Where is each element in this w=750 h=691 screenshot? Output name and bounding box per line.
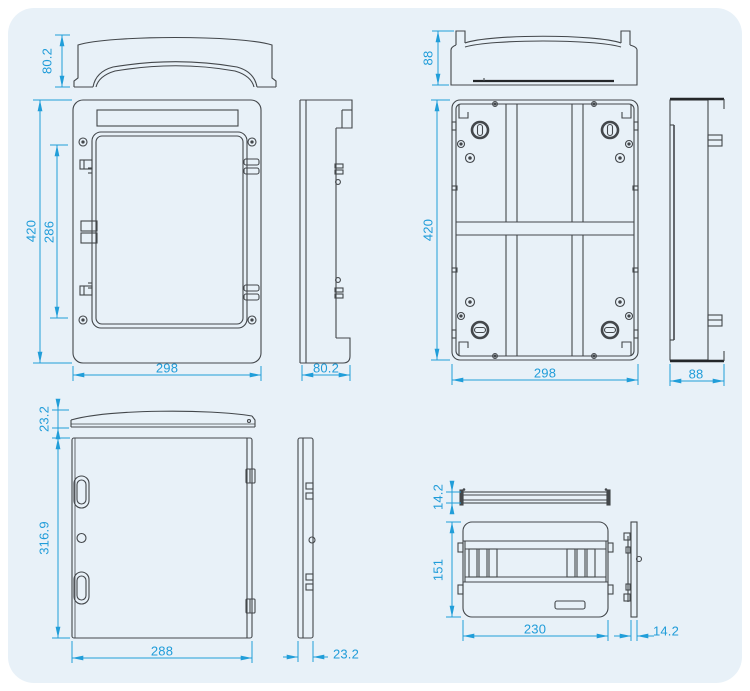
door-top-dimensions [52,399,69,439]
door-dimensions [52,438,252,663]
front-screws [79,138,256,324]
module-plate-side-view [614,522,654,641]
front-cover-profile-view [55,35,276,87]
dim-door-width: 288 [151,645,173,658]
dim-front-window-height: 286 [43,221,56,243]
base-back-view [431,100,638,385]
cover-height-dimension [55,35,70,87]
front-view [33,100,261,381]
dim-front-width: 298 [156,362,178,375]
dim-front-height: 420 [25,220,38,242]
drawing-canvas [0,0,750,691]
dim-door-side-depth: 23.2 [333,648,359,661]
module-dividers [469,549,595,577]
mounting-hooks [452,104,638,356]
front-left-clips [80,160,97,295]
dim-door-top-height: 23.2 [38,406,51,432]
rail-dimensions [446,481,461,514]
door-side-view [283,438,328,662]
base-top-view [432,31,637,85]
front-side-view [300,100,352,381]
dim-back-width: 298 [534,367,556,380]
front-dimensions [33,100,261,381]
dim-plate-width: 230 [524,623,546,636]
door-front-view [52,438,255,663]
dim-door-height: 316.9 [38,521,51,555]
dim-base-top-height: 88 [422,51,435,66]
technical-drawing-page: 80.2 420 286 298 80.2 88 420 298 88 23.2… [0,0,750,691]
door-handle-slots [74,476,89,604]
base-side-view [670,99,724,386]
rail-profile-view [446,481,610,514]
plate-side-dimensions [614,620,654,641]
front-hinge-tabs [244,159,259,300]
keyhole-mounts [472,122,618,338]
screw-bosses [458,102,633,359]
dim-front-side-depth: 80.2 [313,362,339,375]
door-top-profile-view [52,399,255,439]
door-side-dimensions [283,641,328,662]
dim-plate-height: 151 [432,559,445,581]
dim-back-height: 420 [422,219,435,241]
dim-rail-height: 14.2 [432,484,445,510]
dim-cover-height: 80.2 [41,48,54,74]
dim-base-side-depth: 88 [689,368,704,381]
dim-plate-side-depth: 14.2 [653,625,679,638]
